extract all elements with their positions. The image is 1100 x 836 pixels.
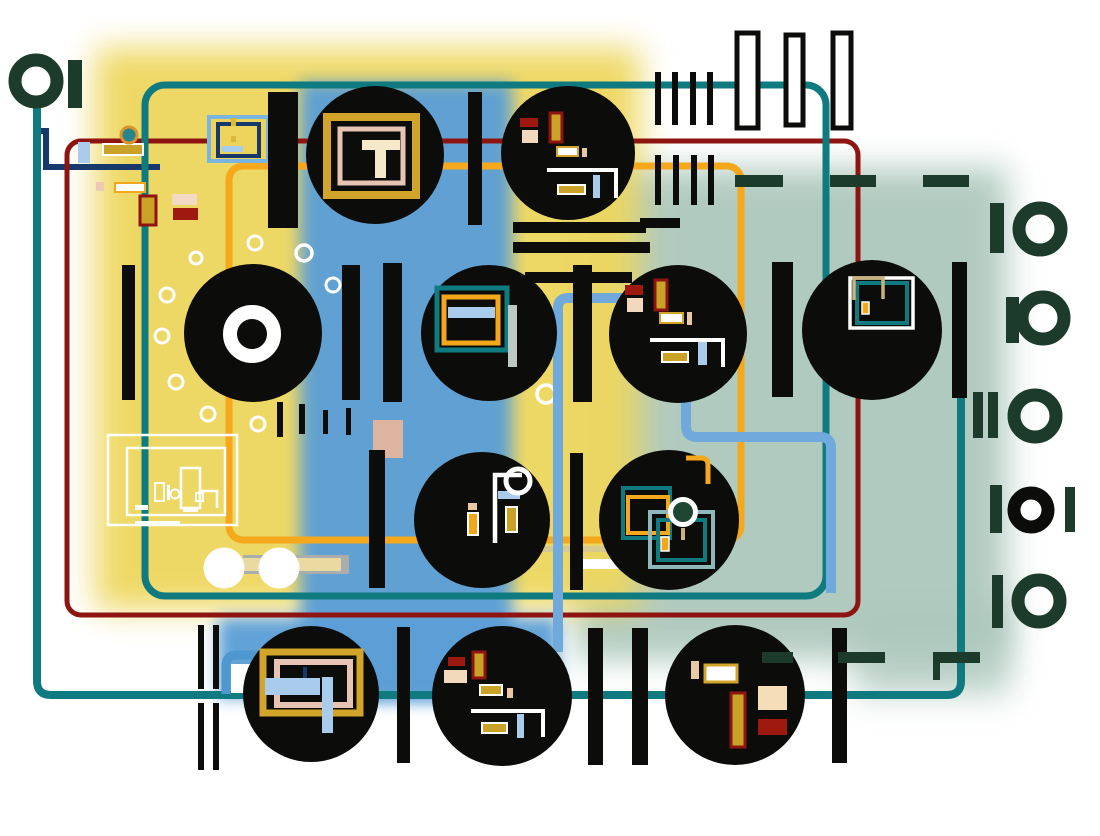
chip — [468, 503, 477, 510]
cluster-baseline — [135, 521, 180, 525]
disc-window-blue-bar — [448, 307, 495, 318]
chip — [522, 130, 538, 143]
bar — [588, 628, 603, 765]
chip — [582, 148, 587, 157]
khaki-red-rect — [140, 196, 156, 225]
chip — [655, 280, 667, 310]
io-ring — [1019, 208, 1061, 250]
chip — [507, 688, 513, 698]
thin-bar — [213, 625, 219, 689]
framed-square-notch — [231, 118, 236, 126]
tick — [691, 155, 697, 205]
corner-mark — [15, 60, 82, 108]
io-bar — [990, 485, 1002, 533]
thin-bar — [198, 703, 204, 770]
disc-donut — [184, 264, 322, 402]
bar — [369, 450, 385, 588]
chip — [520, 118, 538, 127]
bar — [383, 263, 402, 402]
disc-window — [421, 265, 557, 401]
green-bar-top-left — [68, 60, 82, 108]
chip — [558, 185, 585, 194]
io-bar — [1065, 487, 1075, 532]
bar — [268, 92, 298, 228]
cluster-tick — [183, 507, 198, 512]
green-dash — [735, 175, 783, 187]
disc-squares-eye — [671, 500, 696, 525]
chip — [758, 719, 787, 735]
cluster-tick — [135, 505, 148, 510]
teal-dot — [121, 127, 137, 143]
white-knob — [204, 548, 245, 589]
bar-t-stem — [573, 265, 592, 402]
thin-bar — [213, 703, 219, 770]
chip — [698, 342, 707, 365]
chip — [448, 657, 465, 666]
pink-rect — [172, 194, 197, 205]
bar — [772, 262, 793, 397]
chip — [480, 685, 502, 695]
disc-squares-stem — [681, 528, 685, 540]
bg-sage-bottom-right — [855, 600, 1010, 695]
green-ring-top-left — [15, 60, 57, 102]
green-dash-stub — [933, 652, 940, 680]
framed-square-bar — [222, 146, 243, 152]
bar — [122, 265, 135, 400]
chip — [758, 686, 787, 710]
tick — [299, 404, 305, 434]
hollow-bar — [833, 33, 851, 128]
chip — [662, 352, 688, 362]
chip — [627, 298, 643, 312]
disc-frames-vbar — [322, 677, 333, 733]
bar — [832, 628, 847, 763]
cluster-glyph-bar — [167, 485, 170, 500]
hollow-bar — [737, 33, 758, 128]
tick — [655, 155, 661, 205]
white-orange-bar — [115, 183, 145, 192]
pink-chip — [96, 182, 104, 191]
dark-red-bar — [173, 208, 198, 220]
green-dash — [762, 652, 793, 663]
io-bar — [973, 392, 983, 438]
chip — [731, 693, 745, 747]
tick — [346, 408, 351, 435]
chip — [661, 537, 669, 551]
green-dash — [830, 175, 876, 187]
io-ring — [1014, 395, 1056, 437]
disc-window-side-bar — [508, 305, 517, 367]
tick — [672, 72, 678, 125]
tick — [707, 72, 713, 125]
chip — [557, 147, 578, 156]
chip — [660, 313, 683, 323]
disc-monitor-amber-bar — [862, 302, 869, 314]
disc-t-glyph-stem — [375, 140, 386, 178]
pale-blue-bar — [78, 142, 90, 163]
hollow-bar — [786, 35, 803, 125]
io-ring — [1022, 297, 1064, 339]
io-bar — [990, 203, 1004, 253]
io-bar — [992, 575, 1003, 628]
chip — [550, 113, 562, 142]
chip — [517, 714, 524, 738]
tick — [655, 72, 661, 125]
khaki-white-bar — [103, 144, 143, 155]
chip — [625, 285, 643, 295]
tick — [708, 155, 714, 205]
chip — [444, 670, 467, 683]
chip — [687, 312, 692, 325]
chip — [691, 661, 699, 679]
chip — [468, 513, 478, 535]
abstract-circuit-artwork — [0, 0, 1100, 836]
chip — [482, 723, 507, 733]
green-dash — [933, 652, 980, 663]
h-bar — [513, 242, 650, 253]
h-bar — [513, 222, 646, 233]
io-bar — [988, 392, 998, 438]
green-dash — [923, 175, 969, 187]
white-knob — [259, 548, 300, 589]
framed-square-notch — [231, 136, 236, 142]
tick — [277, 402, 283, 437]
io-ring — [1018, 580, 1060, 622]
bar — [342, 265, 360, 400]
tick — [690, 72, 696, 125]
thin-bar — [198, 625, 204, 689]
tick — [323, 410, 328, 434]
green-dash — [838, 652, 885, 663]
bar — [632, 628, 648, 765]
io-donut-black — [1014, 493, 1048, 527]
chip — [593, 175, 600, 198]
bar — [952, 262, 967, 398]
tick — [673, 155, 679, 205]
bar-t-arm — [525, 272, 632, 283]
disc-frames-hbar — [265, 678, 320, 695]
chip — [705, 665, 737, 682]
bar — [397, 627, 410, 763]
chip — [473, 652, 485, 678]
hollow-bars — [737, 33, 851, 128]
disc-frames-navy-tick — [303, 667, 307, 678]
chip — [506, 507, 517, 532]
bar — [570, 453, 583, 590]
bar — [468, 92, 482, 225]
artwork-canvas — [0, 0, 1100, 836]
